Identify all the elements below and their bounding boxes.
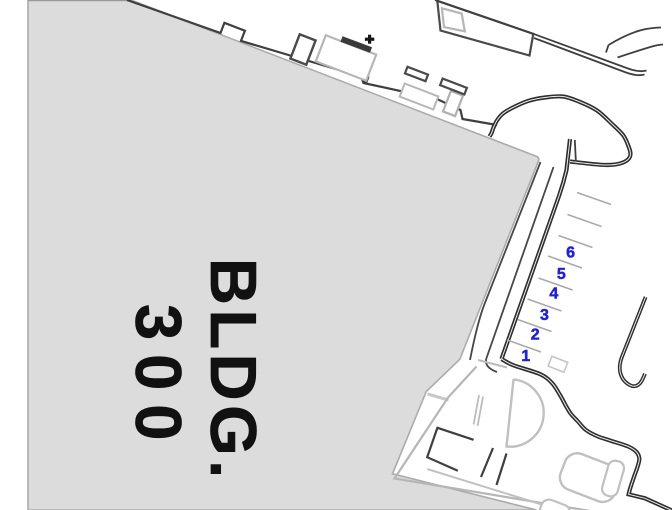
- svg-text:1: 1: [521, 348, 530, 365]
- svg-text:300: 300: [122, 304, 195, 454]
- svg-text:3: 3: [540, 307, 549, 324]
- svg-text:BLDG.: BLDG.: [197, 258, 270, 483]
- svg-text:6: 6: [566, 245, 575, 262]
- svg-text:4: 4: [549, 286, 558, 303]
- svg-text:2: 2: [531, 327, 540, 344]
- svg-text:5: 5: [557, 266, 566, 283]
